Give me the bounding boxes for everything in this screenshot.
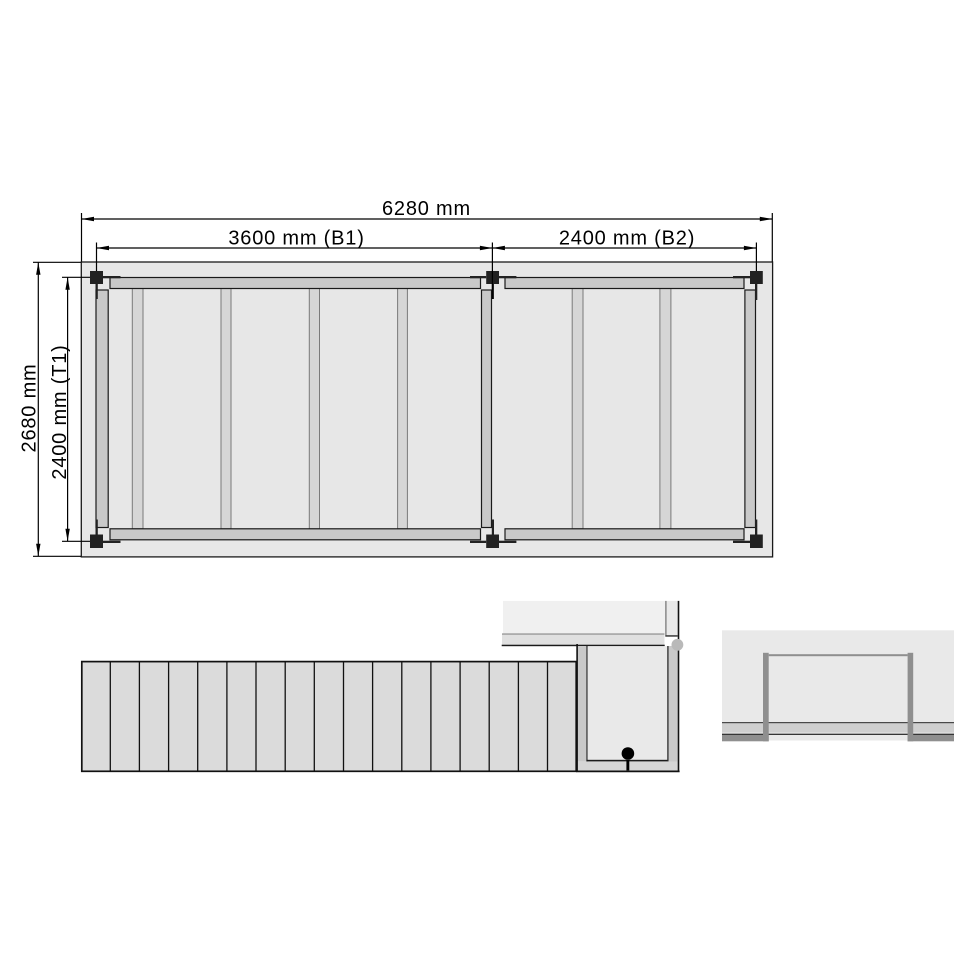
svg-text:2400 mm (T1): 2400 mm (T1) (49, 344, 71, 479)
svg-text:3600 mm (B1): 3600 mm (B1) (228, 228, 364, 250)
svg-text:2400 mm (B2): 2400 mm (B2) (559, 228, 695, 250)
svg-text:6280 mm: 6280 mm (382, 198, 471, 220)
svg-text:2680 mm: 2680 mm (19, 364, 41, 453)
